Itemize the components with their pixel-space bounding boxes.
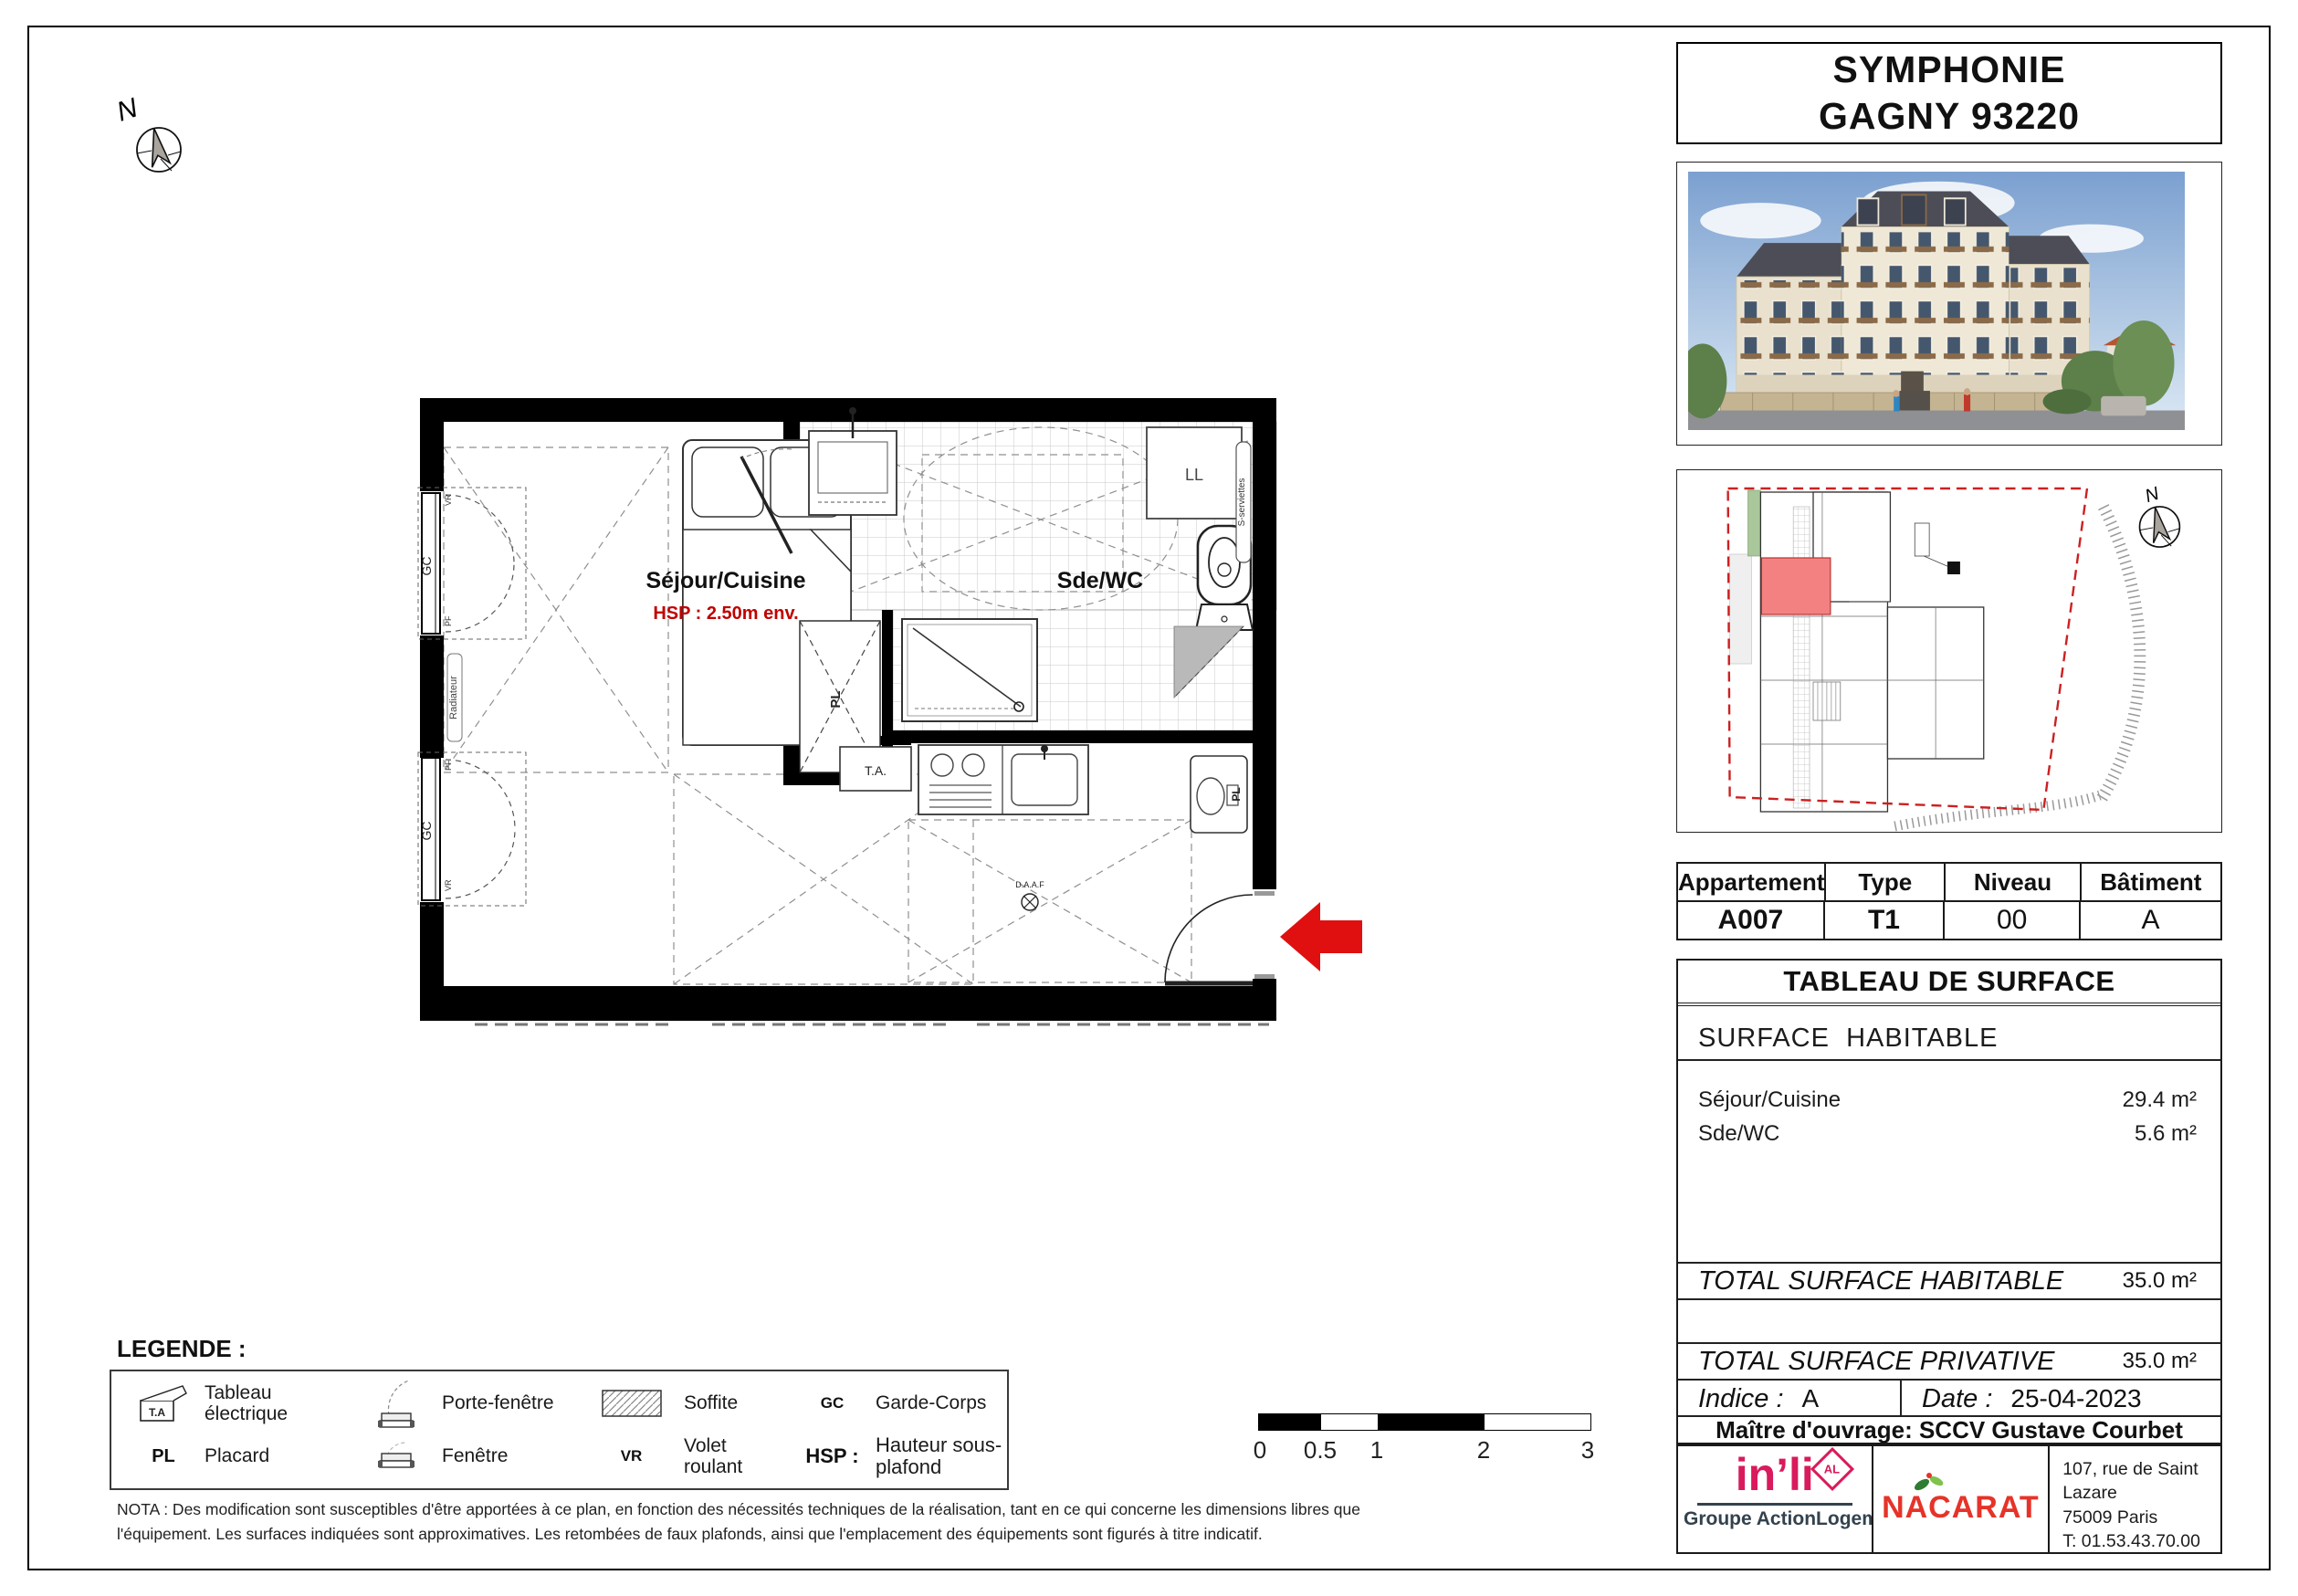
surface-table-title: TABLEAU DE SURFACE: [1678, 961, 2220, 1006]
surface-row: Séjour/Cuisine 29.4 m²: [1698, 1083, 2197, 1117]
pl-symbol: PL: [122, 1446, 205, 1467]
pf-label: PF: [444, 615, 453, 626]
ta-label: T.A.: [865, 763, 887, 778]
porte-fenetre-left-2: GC PF VR: [418, 752, 526, 906]
sde-wc-label: Sde/WC: [1057, 568, 1143, 593]
apt-header: Niveau: [1946, 864, 2081, 900]
date-value: 25-04-2023: [2010, 1384, 2141, 1413]
scale-tick: 0: [1254, 1436, 1266, 1465]
surface-table: TABLEAU DE SURFACE SURFACE HABITABLE Séj…: [1676, 959, 2222, 1444]
nacarat-logo: NACARAT: [1873, 1446, 2051, 1552]
nota-text: NOTA : Des modification sont susceptible…: [117, 1497, 1372, 1547]
legend-label: Porte-fenêtre: [442, 1392, 579, 1413]
al-badge-icon: AL: [1810, 1447, 1853, 1491]
north-label: N: [113, 92, 142, 127]
floor-plan-drawing: GC VR PF GC PF VR Radiateur: [411, 391, 1379, 1030]
indice-value: A: [1802, 1384, 1820, 1413]
gc-label: GC: [419, 557, 434, 576]
surface-row: Sde/WC 5.6 m²: [1698, 1117, 2197, 1150]
date-label: Date :: [1922, 1384, 1992, 1414]
sejour-cuisine-label: Séjour/Cuisine: [645, 568, 805, 593]
apartment-table: Appartement Type Niveau Bâtiment A007 T1…: [1676, 862, 2222, 940]
shower: [902, 619, 1037, 721]
apt-number: A007: [1678, 902, 1825, 939]
room-label: Séjour/Cuisine: [1698, 1083, 1841, 1117]
vr-symbol: VR: [579, 1447, 684, 1465]
towel-dryer: S-serviettes: [1236, 442, 1251, 562]
surface-section-header: SURFACE HABITABLE: [1678, 1006, 2220, 1061]
washing-machine: LL: [1147, 427, 1242, 519]
total-privative-row: TOTAL SURFACE PRIVATIVE 35.0 m²: [1678, 1342, 2220, 1379]
legend-title: LEGENDE :: [117, 1335, 247, 1363]
soffite-icon: [579, 1390, 684, 1417]
apt-level: 00: [1945, 902, 2081, 939]
legend-label: Garde-Corps: [876, 1392, 1049, 1413]
scale-bar-segments: [1258, 1413, 1591, 1431]
ll-label: LL: [1185, 466, 1203, 484]
apt-building: A: [2081, 902, 2220, 939]
hsp-label: HSP : 2.50m env.: [653, 604, 798, 624]
room-area: 29.4 m²: [2123, 1083, 2197, 1117]
apt-type: T1: [1825, 902, 1945, 939]
site-plan: N: [1676, 469, 2222, 833]
total-habitable-row: TOTAL SURFACE HABITABLE 35.0 m²: [1678, 1262, 2220, 1300]
project-city: GAGNY 93220: [1819, 93, 2080, 140]
porte-fenetre-icon: [351, 1377, 442, 1430]
room-label: Sde/WC: [1698, 1117, 1779, 1150]
radiateur: Radiateur: [447, 654, 462, 741]
gc-symbol: GC: [789, 1394, 876, 1412]
inli-group-label: Groupe ActionLogement: [1678, 1508, 1872, 1530]
apt-header: Appartement: [1678, 864, 1826, 900]
project-name: SYMPHONIE: [1832, 47, 2065, 93]
daaf-detector: D.A.A.F: [1015, 880, 1044, 910]
pl-label: PL: [1230, 787, 1243, 801]
legend-label: Hauteur sous-plafond: [876, 1434, 1049, 1478]
floor-plan: GC VR PF GC PF VR Radiateur: [411, 391, 1379, 1032]
nacarat-leaves-icon: [1913, 1472, 1953, 1492]
legend-label: Soffite: [684, 1392, 789, 1413]
legend-label: Volet roulant: [684, 1435, 789, 1477]
project-title-box: SYMPHONIE GAGNY 93220: [1676, 42, 2222, 144]
building-photo: [1676, 162, 2222, 446]
apt-header: Type: [1826, 864, 1946, 900]
svg-text:T.A: T.A: [149, 1406, 165, 1419]
kitchen-unit: [918, 745, 1088, 814]
indice-date-row: Indice : A Date : 25-04-2023: [1678, 1379, 2220, 1417]
room-area: 5.6 m²: [2135, 1117, 2197, 1150]
legend-label: Fenêtre: [442, 1445, 579, 1466]
pl-label: PL: [828, 690, 844, 708]
daaf-label: D.A.A.F: [1015, 880, 1044, 889]
legend-label: Tableau électrique: [205, 1382, 351, 1424]
inli-logo: in’li AL Groupe ActionLogement: [1678, 1446, 1873, 1552]
scale-tick: 3: [1581, 1436, 1594, 1465]
highlighted-unit: [1761, 558, 1830, 614]
plan-sheet: N: [0, 0, 2298, 1596]
legend-label: Placard: [205, 1445, 351, 1466]
legend-box: T.A Tableau électrique Porte-fenêtre Sof…: [110, 1370, 1009, 1490]
north-arrow-icon: N: [102, 88, 212, 197]
vr-label: VR: [444, 494, 453, 506]
porte-fenetre-left-1: GC VR PF: [418, 488, 526, 639]
seche-serviettes-label: S-serviettes: [1237, 478, 1247, 527]
scale-tick: 0.5: [1304, 1436, 1337, 1465]
indice-label: Indice :: [1698, 1384, 1784, 1414]
entry-arrow-icon: [1280, 902, 1362, 971]
tableau-electrique: T.A.: [840, 747, 911, 791]
entry-cabinet-sink: PL: [1191, 756, 1247, 833]
promoter-address: 107, rue de Saint Lazare 75009 Paris T: …: [2050, 1446, 2220, 1552]
entry-door: [1165, 891, 1276, 983]
scale-bar: 0 0.5 1 2 3: [1258, 1413, 1591, 1468]
scale-tick: 2: [1477, 1436, 1490, 1465]
tableau-electrique-icon: T.A: [122, 1382, 205, 1424]
gc-label: GC: [419, 822, 434, 841]
pf-label: PF: [444, 760, 453, 771]
maitre-ouvrage: Maître d'ouvrage: SCCV Gustave Courbet: [1678, 1415, 2220, 1443]
radiateur-label: Radiateur: [448, 676, 459, 719]
apt-header: Bâtiment: [2082, 864, 2220, 900]
vr-label: VR: [444, 879, 453, 891]
logos-row: in’li AL Groupe ActionLogement NACARAT 1…: [1676, 1444, 2222, 1554]
fenetre-icon: [351, 1441, 442, 1472]
scale-tick: 1: [1370, 1436, 1383, 1465]
hsp-symbol: HSP :: [789, 1444, 876, 1468]
